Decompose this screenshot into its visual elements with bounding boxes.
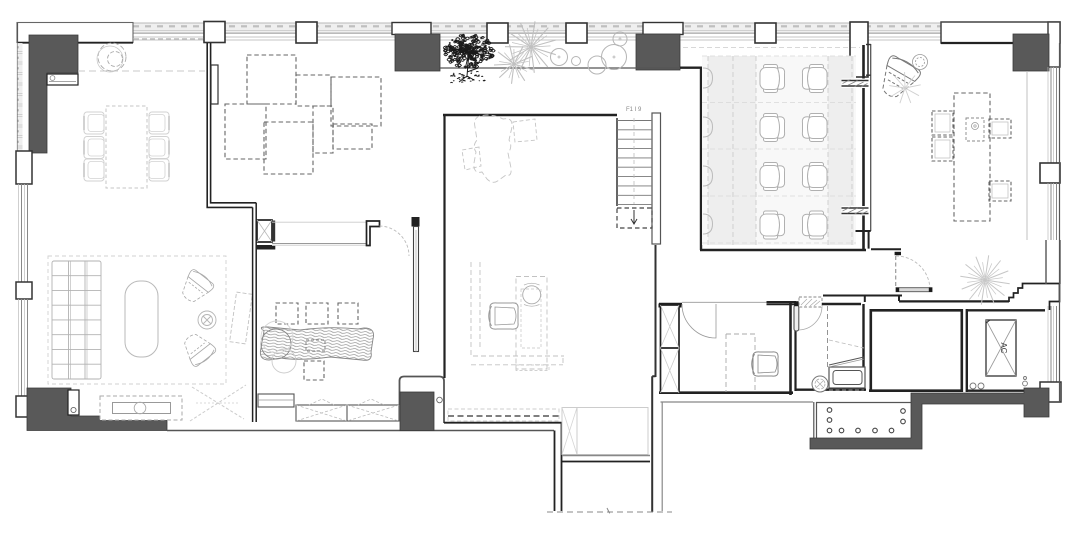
svg-text:F1 I 9: F1 I 9 bbox=[626, 107, 642, 113]
svg-text:AC: AC bbox=[999, 342, 1008, 353]
